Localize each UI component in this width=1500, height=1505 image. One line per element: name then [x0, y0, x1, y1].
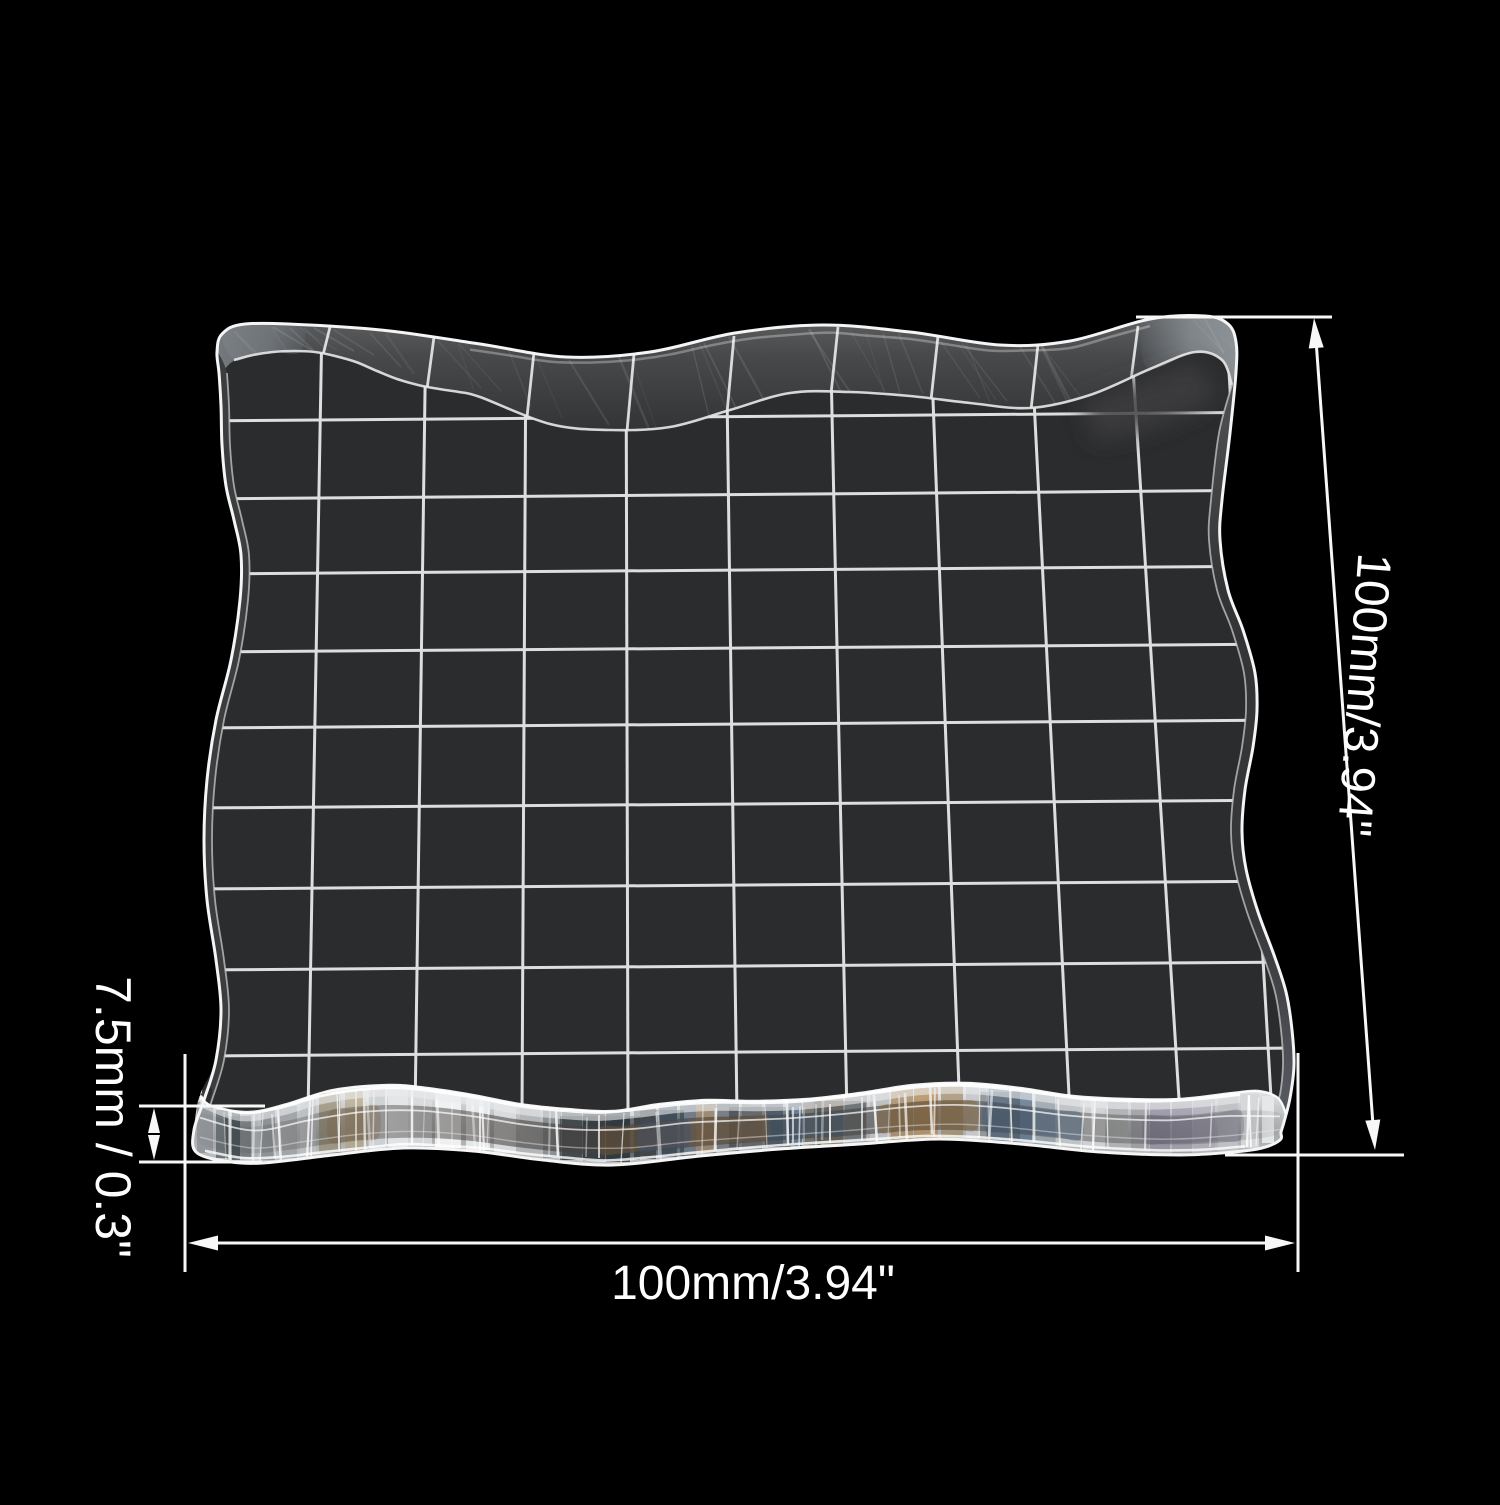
svg-text:100mm/3.94": 100mm/3.94": [611, 1257, 895, 1310]
svg-text:7.5mm / 0.3": 7.5mm / 0.3": [85, 976, 141, 1258]
